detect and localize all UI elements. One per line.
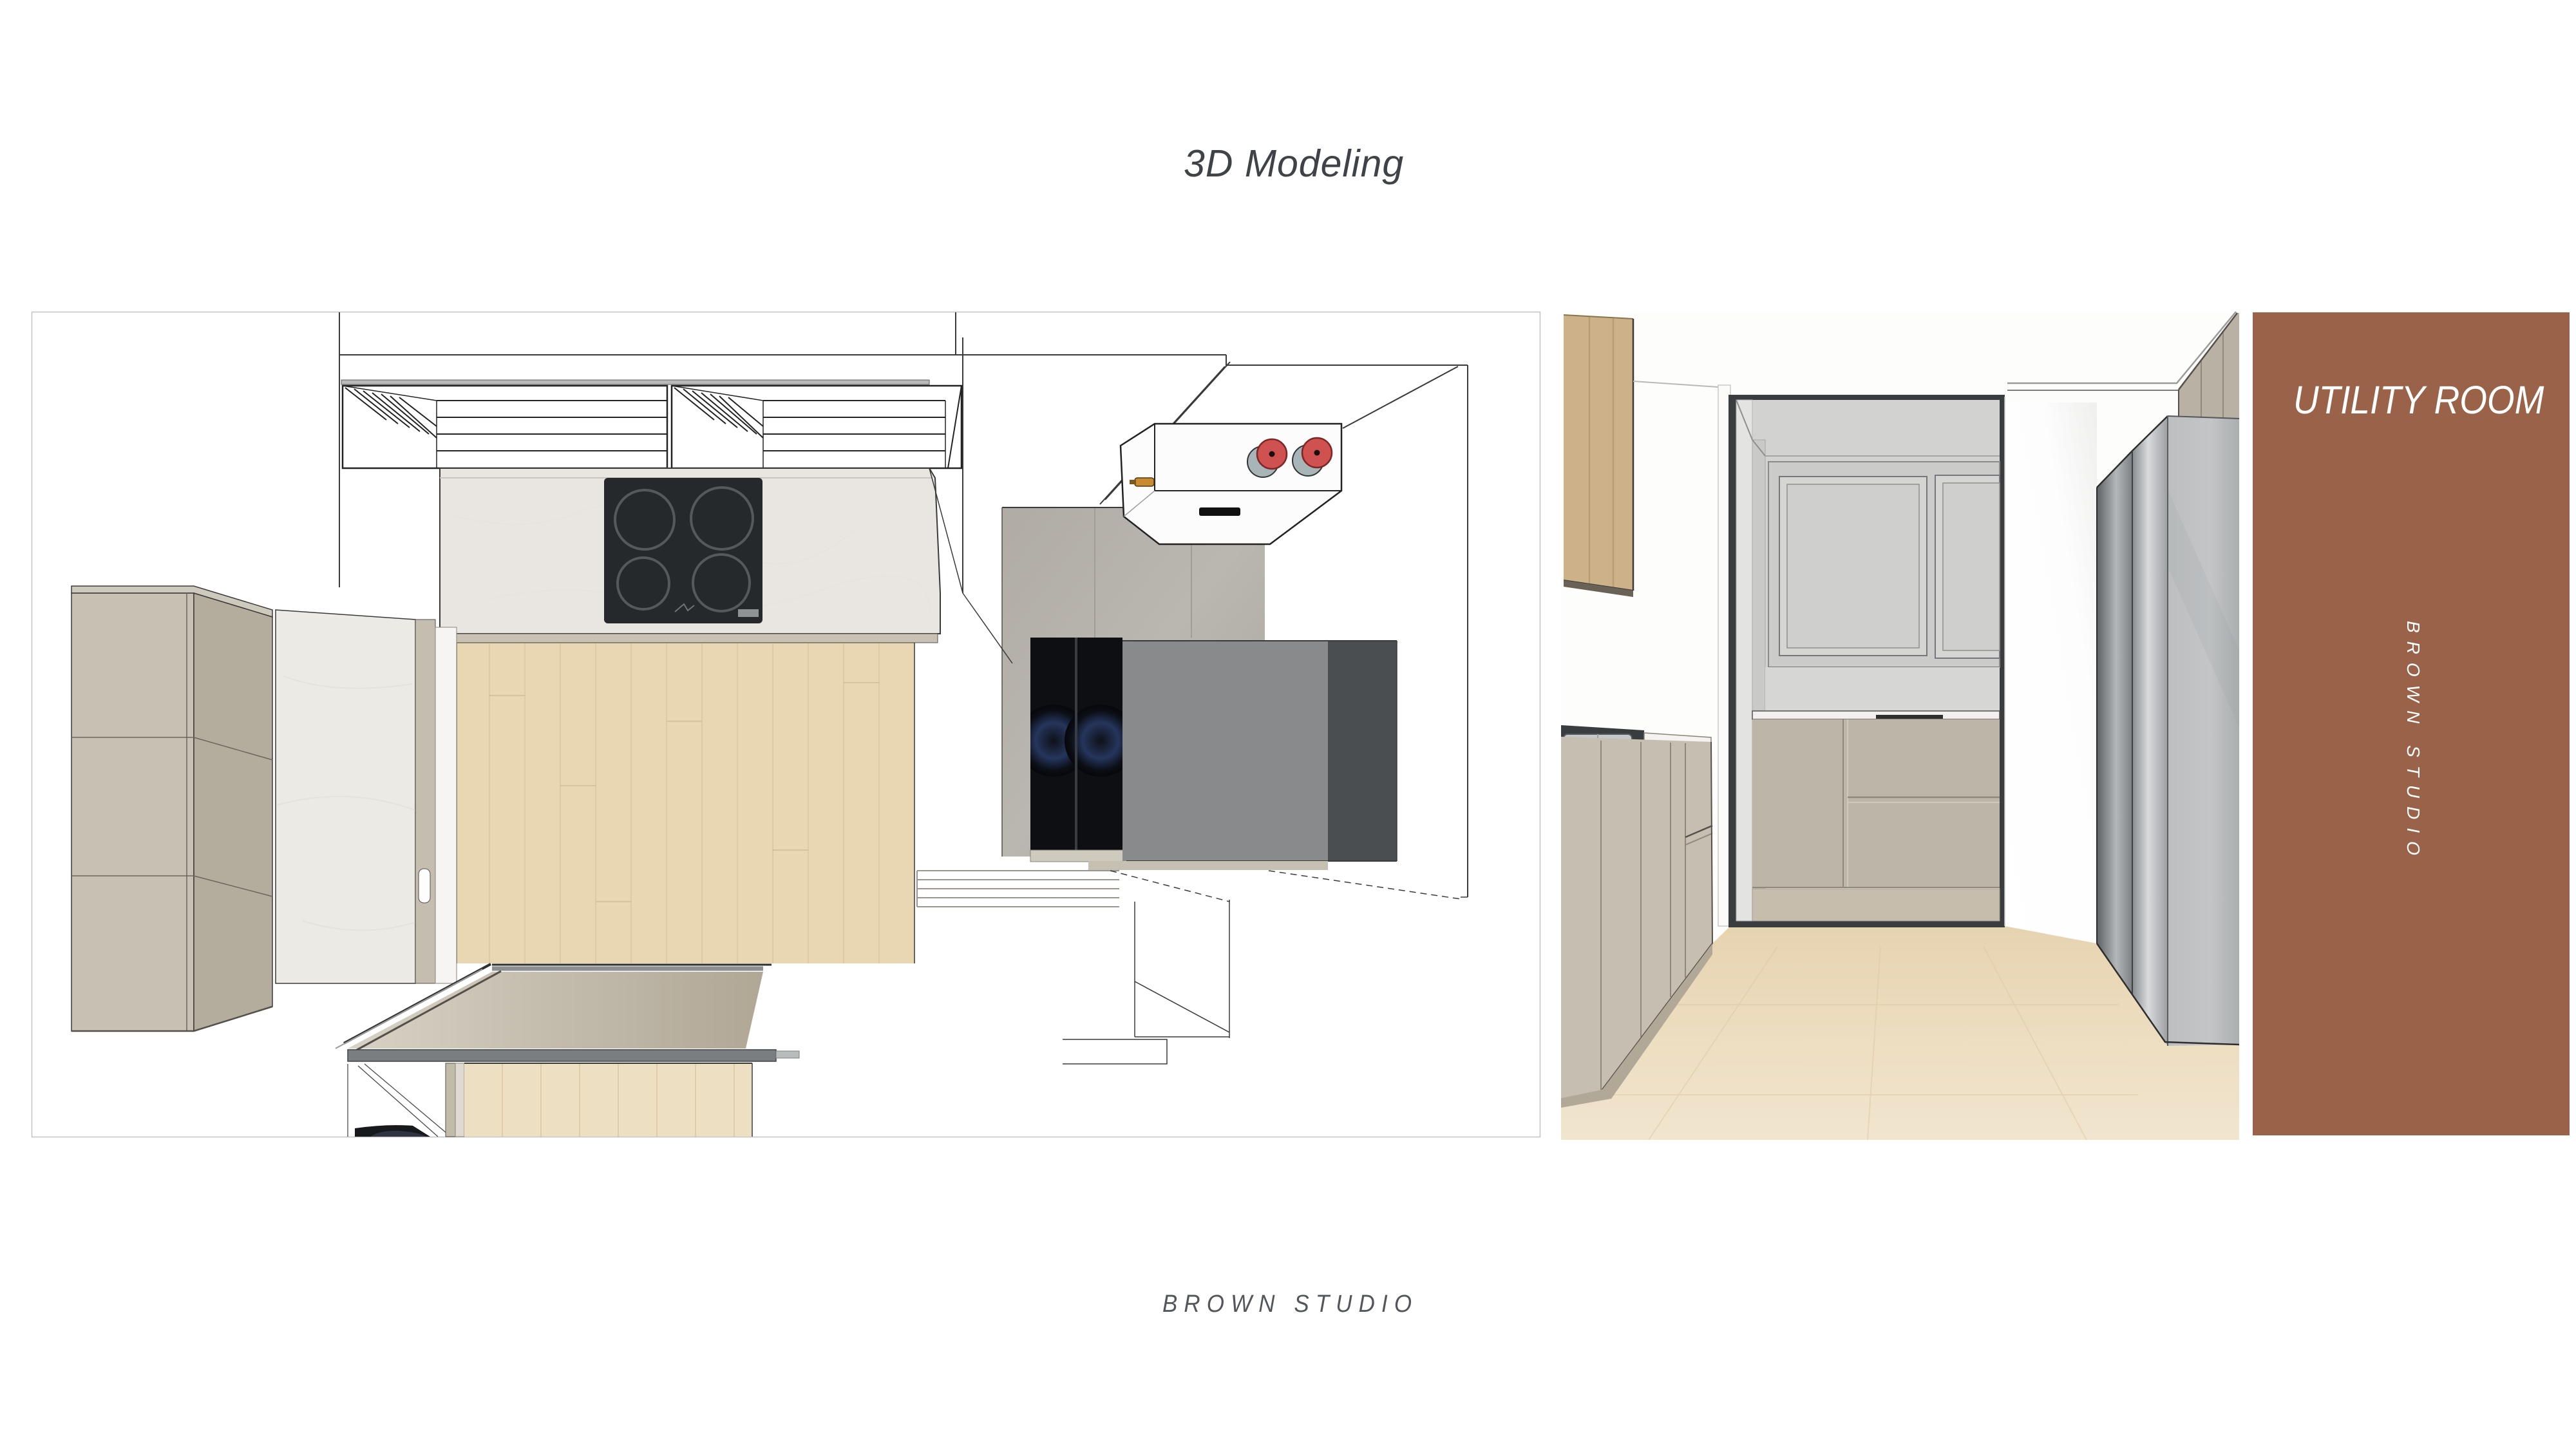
svg-text:3D Modeling: 3D Modeling: [1184, 142, 1404, 185]
svg-text:BROWN STUDIO: BROWN STUDIO: [1162, 1290, 1418, 1318]
svg-text:BROWN STUDIO: BROWN STUDIO: [2403, 621, 2423, 864]
svg-text:UTILITY ROOM: UTILITY ROOM: [2293, 378, 2544, 422]
